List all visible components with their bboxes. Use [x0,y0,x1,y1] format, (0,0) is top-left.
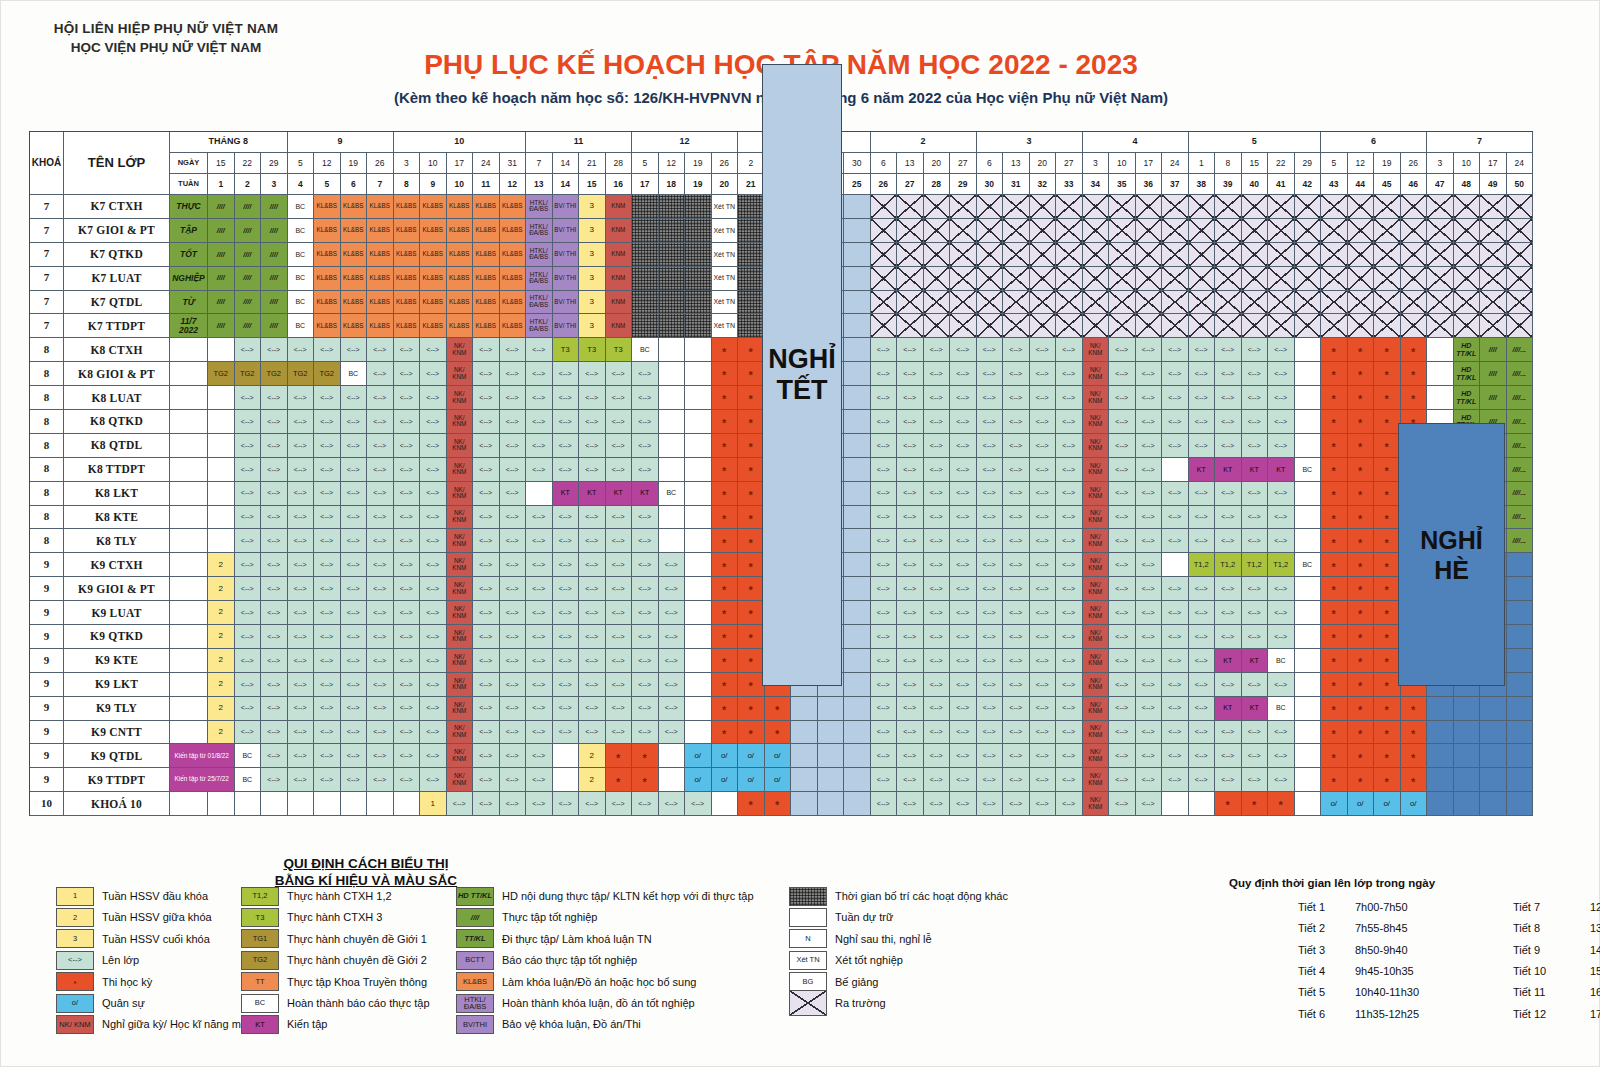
week-cell: KL&BS [394,267,421,291]
week-cell: <--> [235,529,262,553]
week-cell: <--> [526,434,553,458]
row-label-cell [170,649,208,673]
week-cell: * [1348,649,1375,673]
day-header: 13 [897,153,924,174]
week-cell: <--> [1189,506,1216,530]
week-cell [844,386,871,410]
week-cell [1454,721,1481,745]
week-cell: <--> [1003,697,1030,721]
week-header: 32 [1030,174,1057,195]
week-cell: <--> [553,673,580,697]
week-cell [208,529,235,553]
week-cell [844,577,871,601]
week-cell: <--> [314,553,341,577]
week-cell [659,195,686,219]
week-cell: <--> [1109,506,1136,530]
week-cell: <--> [473,458,500,482]
week-cell [844,673,871,697]
day-header: 5 [632,153,659,174]
legend-label: Tuần HSSV đầu khóa [102,890,208,902]
week-cell: <--> [1242,744,1269,768]
week-cell: <--> [1162,338,1189,362]
week-cell [632,291,659,315]
week-cell: <--> [632,553,659,577]
week-cell [844,291,871,315]
week-cell: <--> [420,721,447,745]
week-cell: <--> [261,529,288,553]
week-cell: NK/ KNM [1083,601,1110,625]
period-time: 7h55-8h45 [1355,922,1408,934]
week-cell: KL&BS [394,195,421,219]
week-cell: <--> [420,434,447,458]
week-cell: * [738,553,765,577]
week-cell: <--> [367,768,394,792]
week-cell: <--> [924,553,951,577]
week-cell [1480,314,1507,338]
week-cell: <--> [235,577,262,601]
week-cell: <--> [394,386,421,410]
week-cell: <--> [950,362,977,386]
week-cell [659,291,686,315]
week-cell: BC [288,314,315,338]
week-cell: <--> [1162,768,1189,792]
week-cell [1162,553,1189,577]
week-cell: <--> [500,482,527,506]
day-header: 17 [447,153,474,174]
week-cell: <--> [341,482,368,506]
week-cell: * [1348,458,1375,482]
week-cell: HTKL/ ĐA/BS [526,267,553,291]
week-cell: <--> [1136,529,1163,553]
khoa-cell: 7 [30,195,64,219]
class-name-cell: K8 TTDPT [64,458,170,482]
week-cell: <--> [924,744,951,768]
week-cell: KL&BS [394,243,421,267]
week-cell: <--> [1215,721,1242,745]
period-time: 9h45-10h35 [1355,965,1414,977]
legend-swatch: //// [456,908,494,927]
week-cell [1136,267,1163,291]
week-cell [1454,768,1481,792]
week-cell: o/ [738,744,765,768]
week-cell: KNM [606,219,633,243]
week-cell: <--> [526,744,553,768]
day-header: 29 [1295,153,1322,174]
week-cell: BC [1295,458,1322,482]
week-cell: <--> [394,649,421,673]
week-cell: <--> [897,338,924,362]
khoa-cell: 8 [30,434,64,458]
week-cell: <--> [1003,506,1030,530]
week-cell: <--> [632,577,659,601]
week-cell: <--> [924,482,951,506]
week-cell [844,792,871,816]
week-cell: <--> [897,506,924,530]
week-cell [1507,219,1534,243]
week-cell: KL&BS [394,314,421,338]
week-cell: <--> [579,362,606,386]
week-cell: <--> [977,410,1004,434]
week-cell: * [1374,458,1401,482]
week-cell: NK/ KNM [1083,697,1110,721]
week-cell: * [1374,625,1401,649]
week-cell: * [1374,697,1401,721]
week-header: 35 [1109,174,1136,195]
khoa-cell: 8 [30,386,64,410]
week-cell [659,458,686,482]
row-label-cell [170,529,208,553]
legend-label: Kiến tập [287,1018,327,1030]
week-cell: <--> [632,386,659,410]
week-cell: <--> [288,721,315,745]
week-cell: <--> [1030,386,1057,410]
week-cell: <--> [1268,338,1295,362]
row-label-cell: 11/7 2022 [170,314,208,338]
week-header: 4 [288,174,315,195]
week-header: 9 [420,174,447,195]
week-cell: <--> [1136,673,1163,697]
week-cell: KT [632,482,659,506]
week-cell: <--> [1056,721,1083,745]
week-cell: <--> [1056,577,1083,601]
week-cell [844,553,871,577]
week-cell: * [1374,362,1401,386]
week-cell: * [712,434,739,458]
week-cell: * [1348,601,1375,625]
week-cell: NK/ KNM [447,482,474,506]
week-cell: <--> [235,410,262,434]
week-cell: 2 [208,673,235,697]
week-cell [1480,267,1507,291]
week-cell: <--> [924,434,951,458]
khoa-cell: 8 [30,338,64,362]
legend-item: BGBế giảng [789,972,878,992]
week-cell: <--> [235,553,262,577]
week-cell: //// [208,291,235,315]
week-cell: <--> [871,529,898,553]
legend-item: KTKiến tập [241,1014,327,1034]
week-cell: <--> [924,673,951,697]
week-cell [1030,291,1057,315]
week-cell: <--> [420,482,447,506]
week-cell: BV/ THI [553,291,580,315]
week-cell: <--> [1003,673,1030,697]
week-cell: <--> [473,506,500,530]
week-cell [1295,482,1322,506]
week-cell: <--> [924,362,951,386]
week-cell: KT [1242,649,1269,673]
week-cell: //// [1480,386,1507,410]
day-header: 2 [738,153,765,174]
week-cell [844,410,871,434]
month-header: 2 [871,132,977,153]
week-cell [871,195,898,219]
week-cell: <--> [473,362,500,386]
week-cell: * [712,362,739,386]
week-cell [1454,744,1481,768]
week-cell: NK/ KNM [1083,673,1110,697]
week-cell: <--> [897,410,924,434]
week-cell [1321,243,1348,267]
week-cell: <--> [1030,721,1057,745]
week-cell: <--> [1162,697,1189,721]
week-cell: <--> [526,577,553,601]
week-cell: <--> [261,577,288,601]
legend-item: Tuần dự trữ [789,907,893,927]
week-cell: BV/ THI [553,314,580,338]
week-cell: HTKL/ ĐA/BS [526,195,553,219]
week-cell [1427,267,1454,291]
week-cell: <--> [553,625,580,649]
week-cell: <--> [314,697,341,721]
week-cell: <--> [367,410,394,434]
week-cell [1083,267,1110,291]
week-cell: * [1321,506,1348,530]
week-cell [1401,219,1428,243]
week-cell: <--> [367,625,394,649]
week-cell: <--> [871,410,898,434]
legend-label: Quân sự [102,997,145,1009]
week-cell [685,434,712,458]
day-header: 27 [1056,153,1083,174]
day-header: 22 [235,153,262,174]
week-cell: <--> [473,744,500,768]
legend-swatch: o/ [56,994,94,1013]
class-name-cell: K8 QTDL [64,434,170,458]
week-cell: <--> [871,553,898,577]
week-cell: NK/ KNM [1083,792,1110,816]
week-cell: NK/ KNM [447,625,474,649]
week-cell [659,529,686,553]
month-header: 7 [1427,132,1533,153]
org-name: HỌC VIỆN PHỤ NỮ VIỆT NAM [31,40,301,55]
week-cell: <--> [261,744,288,768]
week-cell: //// [261,267,288,291]
week-cell: * [1321,625,1348,649]
week-cell: <--> [420,744,447,768]
week-cell: <--> [606,721,633,745]
legend-item: *Thi học kỳ [56,972,152,992]
week-cell: <--> [1030,577,1057,601]
khoa-cell: 7 [30,243,64,267]
week-cell [659,744,686,768]
week-cell: <--> [420,362,447,386]
legend-item: NNghỉ sau thi, nghỉ lễ [789,929,932,949]
week-cell: NK/ KNM [1083,553,1110,577]
week-cell: <--> [1136,792,1163,816]
week-cell: <--> [288,410,315,434]
day-header: 31 [500,153,527,174]
week-cell: <--> [1030,410,1057,434]
week-cell [950,267,977,291]
week-cell: * [1348,553,1375,577]
legend-label: Hoàn thành báo cáo thực tập [287,997,430,1009]
week-cell: <--> [553,649,580,673]
week-cell: <--> [1136,601,1163,625]
week-cell: <--> [553,721,580,745]
week-cell: KL&BS [447,195,474,219]
week-cell [897,314,924,338]
week-cell [685,577,712,601]
week-cell: <--> [1268,386,1295,410]
week-cell: * [712,482,739,506]
week-cell: <--> [1268,577,1295,601]
week-cell: KT [606,482,633,506]
week-cell [1189,792,1216,816]
week-cell: NK/ KNM [1083,721,1110,745]
week-cell: //// [235,267,262,291]
legend-item: o/Quân sự [56,993,145,1013]
week-cell: <--> [288,673,315,697]
week-cell: <--> [1268,506,1295,530]
week-cell: <--> [261,673,288,697]
week-cell: <--> [341,577,368,601]
tet-holiday-block: NGHỈ TẾT [762,64,842,686]
week-cell: ////... [1507,386,1534,410]
week-cell [844,314,871,338]
legend-swatch: Xét TN [789,951,827,970]
day-header: 12 [314,153,341,174]
week-cell: <--> [1136,625,1163,649]
day-row-label: NGÀY [170,153,208,174]
week-cell [1401,195,1428,219]
day-header: 10 [420,153,447,174]
week-cell [1427,744,1454,768]
week-cell: <--> [394,529,421,553]
week-cell: <--> [261,553,288,577]
day-header: 29 [261,153,288,174]
week-cell: <--> [1268,721,1295,745]
week-cell: <--> [977,792,1004,816]
week-cell: <--> [1189,697,1216,721]
week-cell: <--> [367,601,394,625]
week-cell [1268,219,1295,243]
week-cell [1401,291,1428,315]
week-cell: <--> [394,458,421,482]
day-header: 24 [1162,153,1189,174]
week-cell: <--> [473,410,500,434]
day-header: 24 [473,153,500,174]
week-cell [738,243,765,267]
week-cell: KL&BS [500,195,527,219]
week-cell: <--> [500,529,527,553]
class-name-cell: K8 TLY [64,529,170,553]
day-header: 13 [1003,153,1030,174]
week-cell [977,314,1004,338]
week-cell: <--> [579,386,606,410]
week-cell: <--> [632,410,659,434]
legend-item: 3Tuần HSSV cuối khóa [56,929,210,949]
week-cell [1454,697,1481,721]
week-cell [1056,267,1083,291]
legend-label: Hoàn thành khóa luận, đồ án tốt nghiệp [502,997,695,1009]
week-cell: 3 [579,243,606,267]
week-cell: KL&BS [473,219,500,243]
week-cell: <--> [1242,434,1269,458]
week-cell: 2 [208,649,235,673]
week-cell: <--> [897,458,924,482]
week-cell [1056,291,1083,315]
week-cell: * [1374,673,1401,697]
class-name-cell: K8 CTXH [64,338,170,362]
week-cell: <--> [977,768,1004,792]
week-cell [659,314,686,338]
week-header: 21 [738,174,765,195]
week-cell: <--> [1109,577,1136,601]
week-cell: <--> [924,792,951,816]
day-header: 20 [1030,153,1057,174]
week-cell: <--> [1242,625,1269,649]
class-name-column-header: TÊN LỚP [64,132,170,195]
week-cell: <--> [1109,673,1136,697]
week-cell: <--> [235,434,262,458]
week-cell: <--> [1215,601,1242,625]
week-cell: KL&BS [314,195,341,219]
week-cell: <--> [1189,386,1216,410]
week-cell: <--> [1056,482,1083,506]
week-cell: <--> [1003,721,1030,745]
legend-swatch: 3 [56,929,94,948]
week-cell: <--> [659,721,686,745]
week-cell: <--> [1162,601,1189,625]
week-cell: <--> [606,673,633,697]
week-cell [1348,195,1375,219]
week-cell: <--> [261,338,288,362]
week-cell: o/ [712,744,739,768]
week-cell: <--> [394,506,421,530]
week-cell: <--> [500,744,527,768]
week-cell [1454,243,1481,267]
week-cell: <--> [606,529,633,553]
week-cell [924,219,951,243]
week-cell: <--> [632,697,659,721]
week-cell: <--> [1109,434,1136,458]
week-cell: * [1321,338,1348,362]
week-cell: o/ [1401,792,1428,816]
week-cell [685,314,712,338]
week-cell: <--> [1136,362,1163,386]
week-cell [1136,219,1163,243]
week-cell: <--> [1056,386,1083,410]
week-cell: HTKL/ ĐA/BS [526,219,553,243]
week-cell [1295,243,1322,267]
week-cell: * [606,744,633,768]
month-header: 11 [526,132,632,153]
week-cell: 3 [579,195,606,219]
week-cell: <--> [1242,386,1269,410]
legend-swatch: T1,2 [241,887,279,906]
week-cell: * [1374,506,1401,530]
week-cell: KL&BS [314,267,341,291]
week-cell [632,219,659,243]
week-cell: <--> [526,601,553,625]
legend-swatch: BCTT [456,951,494,970]
week-cell: <--> [1003,792,1030,816]
week-cell: <--> [1215,410,1242,434]
week-cell [844,195,871,219]
week-cell: * [712,697,739,721]
week-cell: NK/ KNM [447,386,474,410]
week-cell: <--> [394,482,421,506]
legend-swatch: TT [241,972,279,991]
khoa-cell: 8 [30,410,64,434]
week-cell: * [1348,721,1375,745]
week-cell: <--> [950,386,977,410]
week-cell [685,386,712,410]
week-cell: <--> [420,768,447,792]
week-cell [818,721,845,745]
week-cell: <--> [500,362,527,386]
